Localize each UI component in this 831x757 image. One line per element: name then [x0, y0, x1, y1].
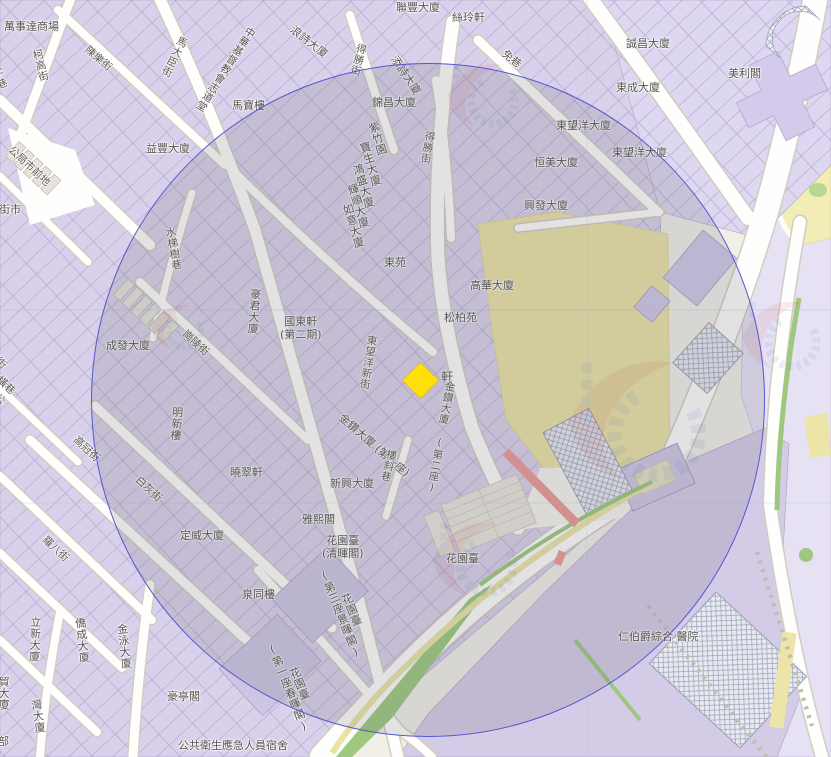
map-viewport[interactable]: 萬事達商場聯豐大廈絲玲軒誠昌大廈美利閣東成大廈東望洋大廈東望洋大廈恒美大廈馬寶樓… [0, 0, 831, 757]
